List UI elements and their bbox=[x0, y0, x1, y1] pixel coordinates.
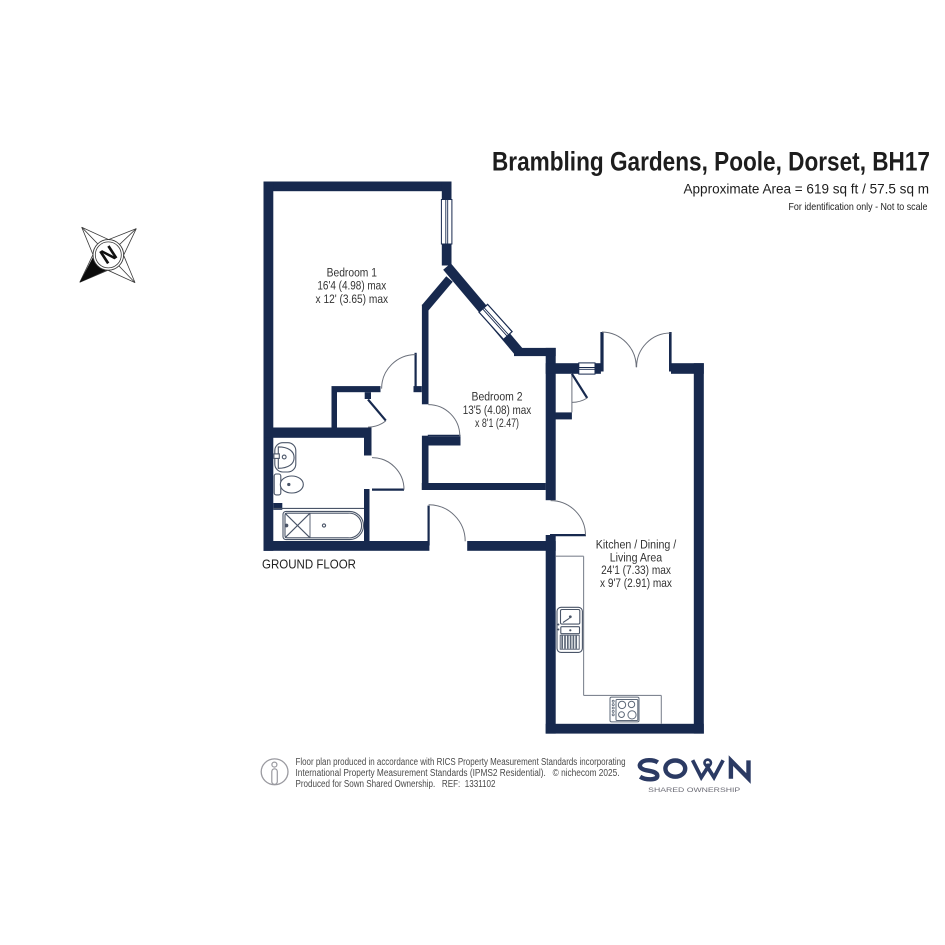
svg-text:16'4 (4.98) max: 16'4 (4.98) max bbox=[317, 279, 386, 293]
svg-text:GROUND FLOOR: GROUND FLOOR bbox=[262, 557, 356, 572]
svg-text:Bedroom 1: Bedroom 1 bbox=[327, 265, 377, 279]
svg-text:x 8'1 (2.47): x 8'1 (2.47) bbox=[475, 416, 519, 430]
svg-text:x 9'7 (2.91) max: x 9'7 (2.91) max bbox=[600, 576, 672, 590]
svg-text:International Property Measure: International Property Measurement Stand… bbox=[296, 768, 620, 779]
svg-text:Bedroom 2: Bedroom 2 bbox=[472, 390, 523, 404]
svg-text:13'5 (4.08) max: 13'5 (4.08) max bbox=[463, 403, 532, 417]
svg-text:Brambling Gardens, Poole, Dors: Brambling Gardens, Poole, Dorset, BH17 bbox=[492, 147, 930, 177]
svg-text:Floor plan produced in accorda: Floor plan produced in accordance with R… bbox=[296, 757, 626, 768]
svg-text:Approximate Area = 619 sq ft /: Approximate Area = 619 sq ft / 57.5 sq m bbox=[684, 182, 930, 198]
svg-text:x 12' (3.65) max: x 12' (3.65) max bbox=[316, 292, 389, 306]
svg-text:Produced for Sown Shared Owner: Produced for Sown Shared Ownership. REF:… bbox=[296, 779, 496, 790]
svg-text:SHARED OWNERSHIP: SHARED OWNERSHIP bbox=[648, 787, 740, 794]
svg-text:For identification only - Not: For identification only - Not to scale bbox=[789, 201, 928, 213]
